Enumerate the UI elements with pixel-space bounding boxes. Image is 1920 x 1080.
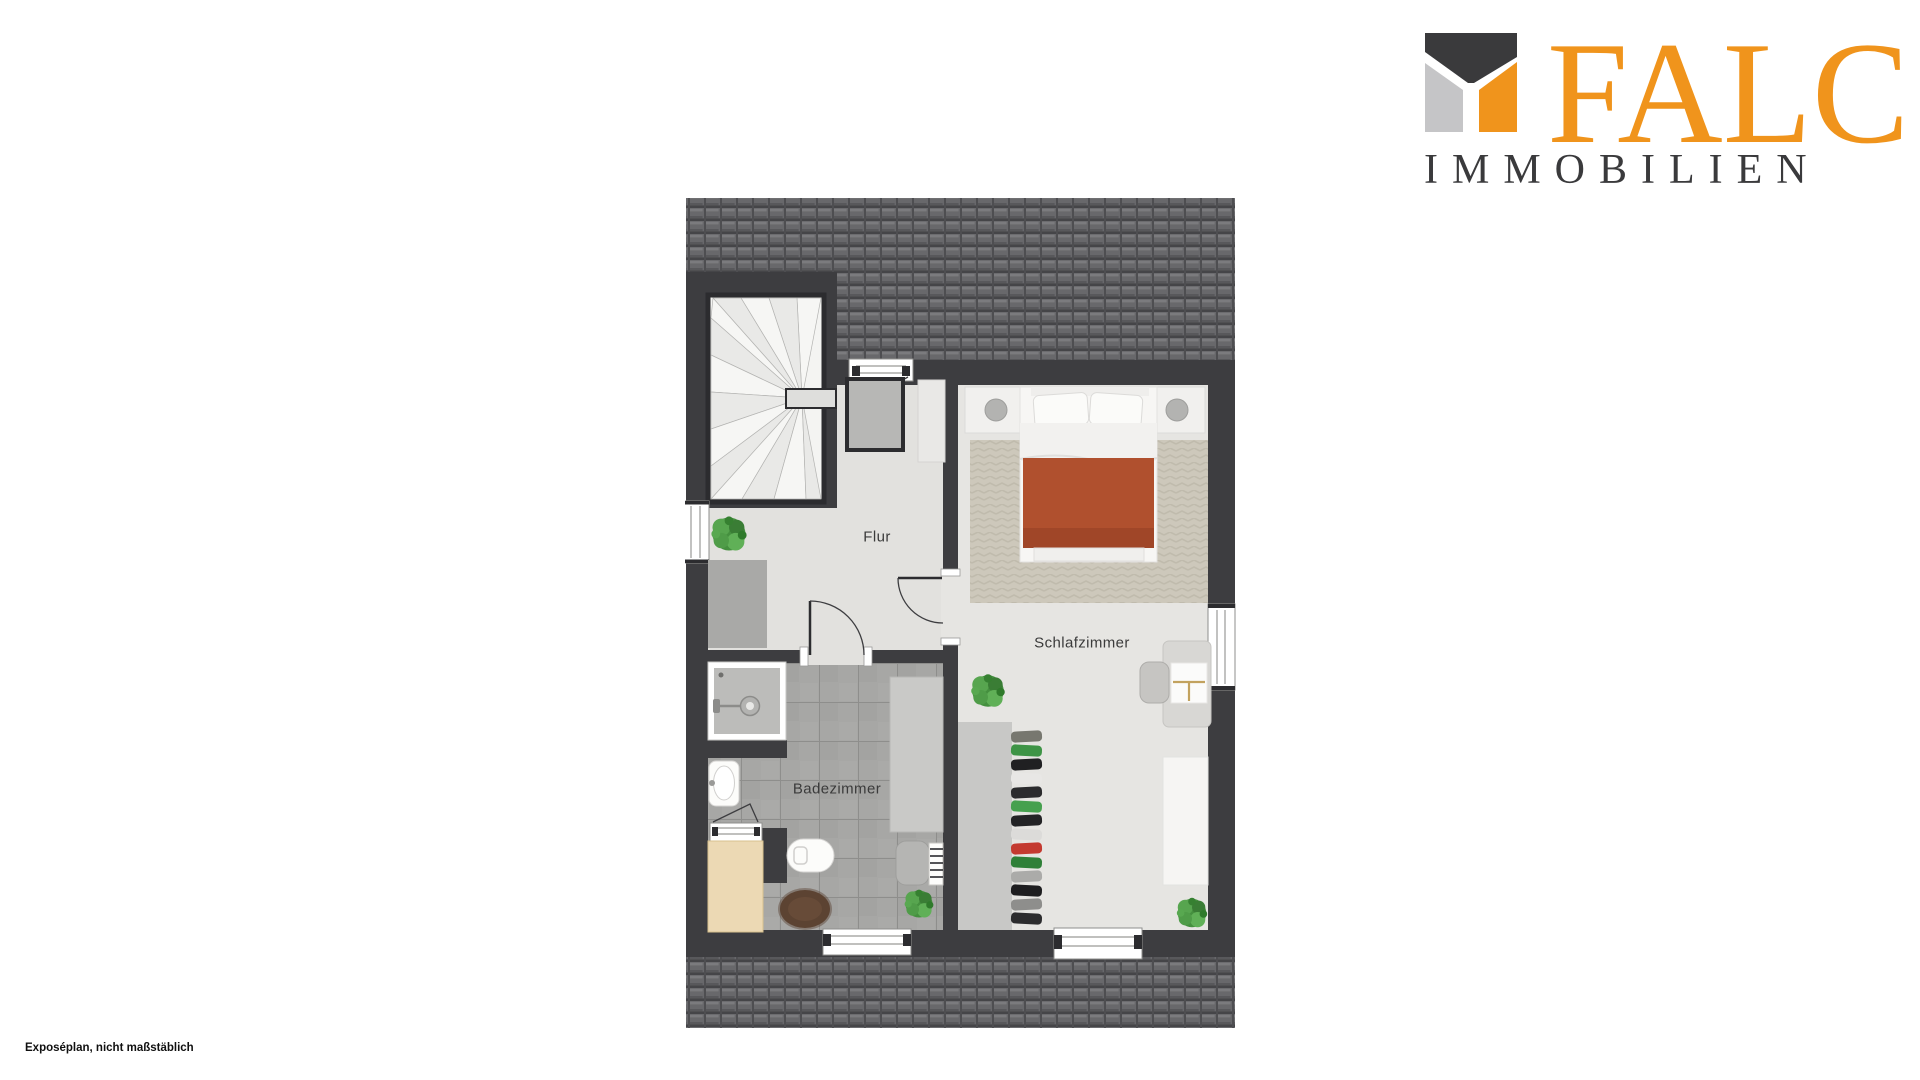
brand-logo-tagline: IMMOBILIEN	[1424, 149, 1821, 191]
plant-icon	[711, 516, 746, 550]
roof-bottom	[686, 957, 1235, 1028]
window-bathroom-bottom	[823, 929, 911, 955]
room-label-schlafzimmer: Schlafzimmer	[1034, 635, 1130, 652]
staircase-landing	[786, 389, 836, 408]
disclaimer-note: Exposéplan, nicht maßstäblich	[25, 1042, 194, 1054]
toilet	[787, 839, 834, 872]
plant-icon	[1177, 898, 1207, 927]
sideboard	[708, 560, 767, 648]
brand-logo-mark-icon	[1423, 33, 1519, 133]
window-bedroom-bottom	[1054, 928, 1142, 959]
room-label-badezimmer: Badezimmer	[793, 781, 881, 798]
desk-chair	[1140, 662, 1169, 703]
bench	[1163, 757, 1208, 885]
double-bed	[1020, 387, 1157, 562]
stool	[896, 841, 929, 885]
page: Flur Schlafzimmer Badezimmer FALC IMMOBI…	[0, 0, 1920, 1080]
nightstand-right	[1150, 387, 1205, 433]
window-left-wall	[685, 501, 709, 563]
desk	[1163, 641, 1211, 727]
nightstand-left	[965, 387, 1027, 433]
bath-rug	[778, 888, 832, 930]
plant-icon	[971, 674, 1005, 707]
skylight-window-box	[847, 379, 903, 450]
tall-cabinet	[918, 380, 945, 462]
washbasin	[709, 761, 739, 806]
room-label-flur: Flur	[863, 529, 890, 546]
brand-logo-wordmark: FALC	[1547, 20, 1909, 166]
window-right-wall	[1208, 604, 1235, 690]
wooden-chest	[708, 841, 763, 932]
plant-icon	[905, 890, 934, 918]
floorplan-drawing	[685, 198, 1238, 1030]
bathroom-cabinet	[890, 677, 943, 832]
shower	[708, 662, 786, 740]
towel-radiator	[929, 843, 943, 885]
brand-logo: FALC IMMOBILIEN	[1423, 30, 1913, 195]
